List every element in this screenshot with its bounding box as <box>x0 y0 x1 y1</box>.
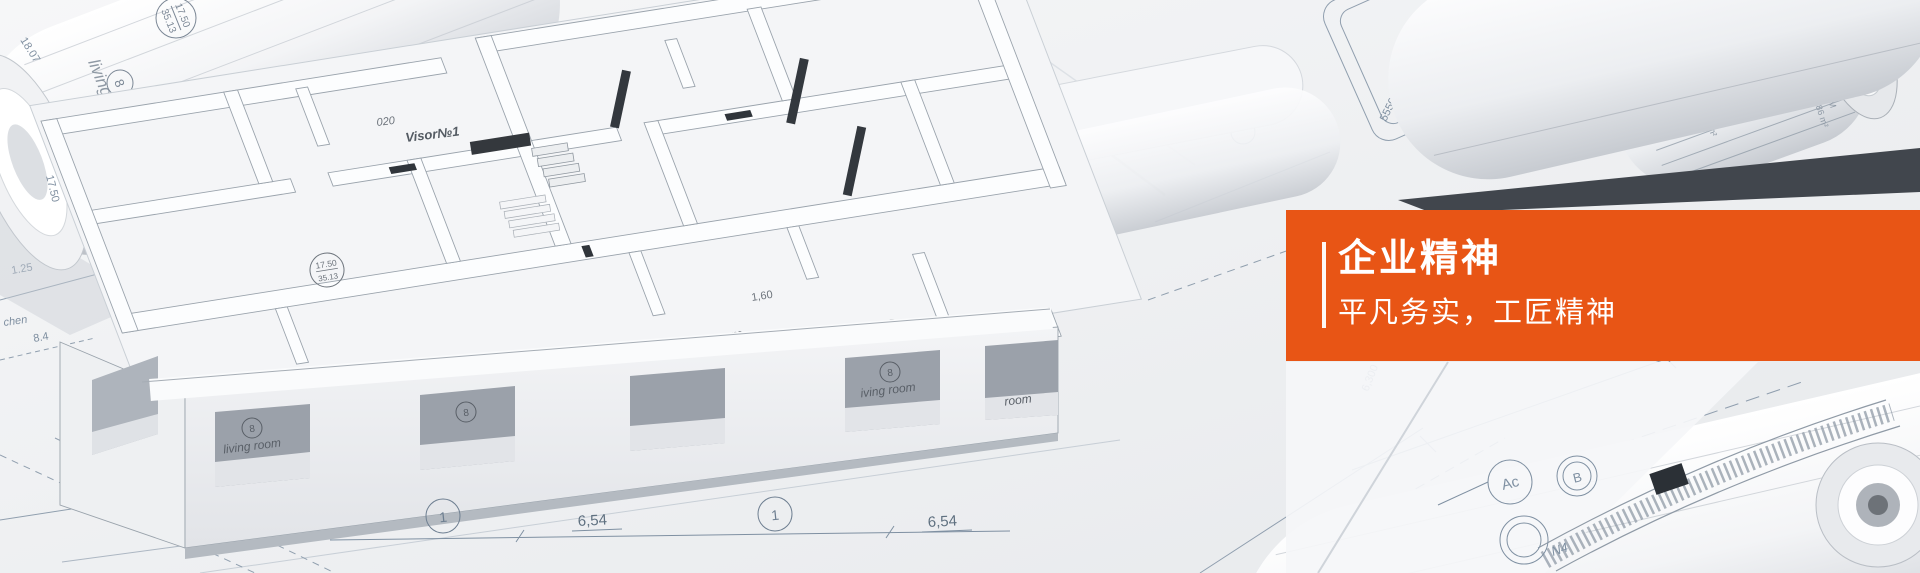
slogan-overlay-card: 企业精神 平凡务实，工匠精神 <box>1286 210 1920 361</box>
slogan-title: 企业精神 <box>1338 238 1502 280</box>
dim-654-a: 6,54 <box>577 511 607 530</box>
lintel-020: 020 <box>376 115 397 129</box>
accent-bar <box>1322 242 1326 328</box>
dim-654-b: 6,54 <box>927 512 957 531</box>
slogan-subtitle: 平凡务实，工匠精神 <box>1338 296 1617 330</box>
hero-banner: 1.25 8.4 chen 8 hen 7 5550 8 living room… <box>0 0 1920 573</box>
